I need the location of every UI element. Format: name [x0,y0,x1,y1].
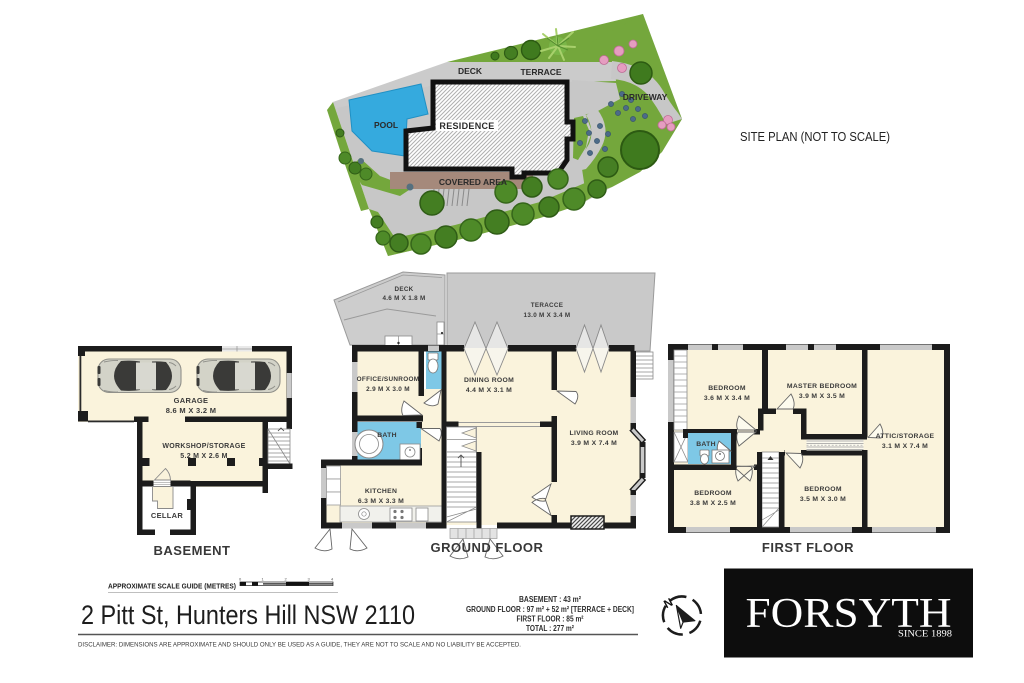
svg-text:LIVING ROOM: LIVING ROOM [570,430,619,437]
svg-text:3.9 M X 7.4 M: 3.9 M X 7.4 M [571,440,617,447]
svg-text:FIRST FLOOR : 85 m²: FIRST FLOOR : 85 m² [517,614,584,624]
svg-text:KITCHEN: KITCHEN [365,488,397,495]
svg-text:GARAGE: GARAGE [174,396,209,405]
svg-text:BATH: BATH [377,432,397,439]
svg-text:BATH: BATH [696,441,716,448]
svg-text:BEDROOM: BEDROOM [804,486,842,493]
svg-text:OFFICE/SUNROOM: OFFICE/SUNROOM [357,376,420,383]
svg-text:3.6 M X 3.4 M: 3.6 M X 3.4 M [704,395,750,402]
svg-text:BEDROOM: BEDROOM [708,385,746,392]
svg-text:4.6 M X 1.8 M: 4.6 M X 1.8 M [382,295,425,302]
svg-text:GROUND FLOOR : 97 m² + 52 m² [: GROUND FLOOR : 97 m² + 52 m² [TERRACE + … [466,604,634,614]
svg-text:3.1 M X 7.4 M: 3.1 M X 7.4 M [882,443,928,450]
svg-text:POOL: POOL [374,120,398,130]
svg-text:8.6 M X 3.2 M: 8.6 M X 3.2 M [166,406,217,415]
svg-text:DINING ROOM: DINING ROOM [464,377,514,384]
svg-text:3.8 M X 2.5 M: 3.8 M X 2.5 M [690,500,736,507]
svg-text:COVERED AREA: COVERED AREA [439,177,507,187]
svg-text:3.5 M X 3.0 M: 3.5 M X 3.0 M [800,496,846,503]
svg-text:WORKSHOP/STORAGE: WORKSHOP/STORAGE [162,443,245,450]
svg-text:RESIDENCE: RESIDENCE [439,121,494,131]
svg-text:13.0 M X 3.4 M: 13.0 M X 3.4 M [524,312,571,319]
svg-text:2 Pitt St, Hunters Hill NSW 21: 2 Pitt St, Hunters Hill NSW 2110 [81,600,415,630]
svg-text:BASEMENT: BASEMENT [154,543,231,558]
svg-text:6.3 M X 3.3 M: 6.3 M X 3.3 M [358,498,404,505]
svg-text:TERACCE: TERACCE [531,302,564,309]
svg-text:DECK: DECK [394,286,413,293]
svg-text:BEDROOM: BEDROOM [694,490,732,497]
svg-text:FIRST FLOOR: FIRST FLOOR [762,540,854,555]
svg-text:ATTIC/STORAGE: ATTIC/STORAGE [876,433,935,440]
svg-text:5.2 M X 2.6 M: 5.2 M X 2.6 M [180,453,227,460]
svg-text:SITE PLAN (NOT TO SCALE): SITE PLAN (NOT TO SCALE) [740,130,890,144]
svg-text:TERRACE: TERRACE [520,67,561,77]
svg-text:CELLAR: CELLAR [151,511,183,520]
svg-text:TOTAL : 277 m²: TOTAL : 277 m² [526,623,574,633]
svg-text:DISCLAIMER: DIMENSIONS ARE APP: DISCLAIMER: DIMENSIONS ARE APPROXIMATE A… [78,642,521,649]
svg-text:BASEMENT : 43 m²: BASEMENT : 43 m² [519,594,581,604]
svg-text:3.9 M X 3.5 M: 3.9 M X 3.5 M [799,393,845,400]
svg-text:DRIVEWAY: DRIVEWAY [623,92,668,102]
svg-text:SINCE 1898: SINCE 1898 [898,630,952,640]
svg-text:DECK: DECK [458,66,483,76]
svg-text:APPROXIMATE SCALE GUIDE (METRE: APPROXIMATE SCALE GUIDE (METRES) [108,582,237,591]
svg-text:MASTER BEDROOM: MASTER BEDROOM [787,383,857,390]
svg-text:2.9 M X 3.0 M: 2.9 M X 3.0 M [366,386,410,393]
svg-text:4.4 M X 3.1 M: 4.4 M X 3.1 M [466,387,512,394]
svg-text:GROUND FLOOR: GROUND FLOOR [431,540,544,555]
